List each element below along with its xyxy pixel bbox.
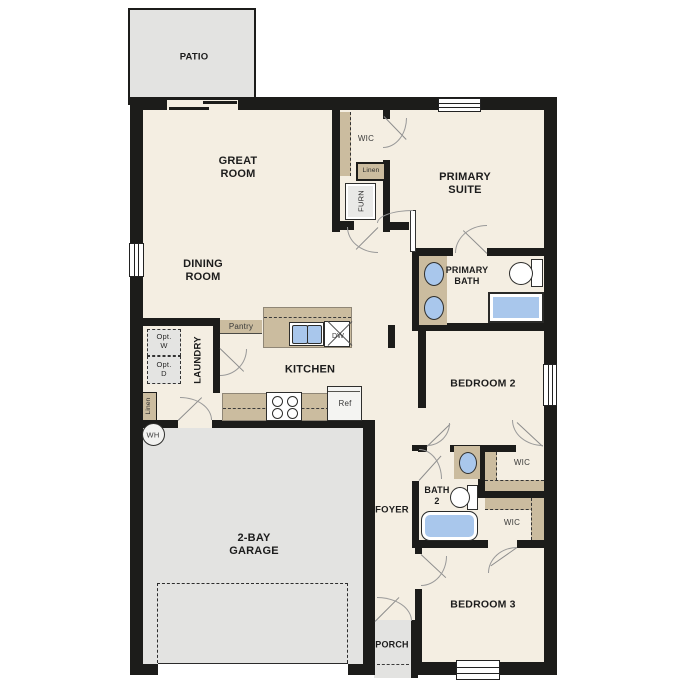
window-dining xyxy=(129,243,144,277)
room-label-great-room: GREAT ROOM xyxy=(219,155,258,181)
laundry-door-opening xyxy=(178,420,212,428)
sink-basin-right xyxy=(307,325,322,344)
room-label-porch: PORCH xyxy=(375,640,409,651)
wall-wic2-wic3 xyxy=(478,491,544,498)
wall-bath2-bedroom3-left xyxy=(412,540,488,548)
patio-slider-panel-right xyxy=(203,101,237,104)
burner-3 xyxy=(272,408,283,419)
kitchen-sink xyxy=(289,322,324,346)
wall-greatroom-closets xyxy=(332,110,340,232)
room-label-garage: 2-BAY GARAGE xyxy=(229,532,278,558)
label-water-heater: WH xyxy=(147,431,160,440)
label-furnace: FURN xyxy=(357,190,366,212)
bath2-toilet-bowl xyxy=(450,487,470,508)
room-label-patio: PATIO xyxy=(180,51,209,62)
primary-shower xyxy=(488,292,544,323)
label-wic-primary: WIC xyxy=(358,134,374,144)
window-bedroom3 xyxy=(456,660,500,680)
wall-bath2-bedroom3-right xyxy=(517,540,544,548)
primary-sink-2 xyxy=(424,296,444,320)
bath2-sink xyxy=(459,452,477,474)
bath2-tub xyxy=(421,511,478,541)
label-linen-laundry: Linen xyxy=(145,398,153,415)
burner-1 xyxy=(272,396,283,407)
label-opt-dryer: Opt. D xyxy=(157,360,172,378)
room-label-bath2: BATH 2 xyxy=(424,485,449,507)
porch-step-line xyxy=(377,664,409,665)
wall-bedroom2-left xyxy=(418,330,426,408)
refrigerator-top-line xyxy=(328,391,360,392)
room-label-foyer: FOYER xyxy=(375,504,409,515)
burner-2 xyxy=(287,396,298,407)
label-linen-hall: Linen xyxy=(363,167,380,175)
garage-door-opening xyxy=(158,663,348,677)
room-label-bedroom3: BEDROOM 3 xyxy=(450,599,515,612)
wall-primarybath-top-right xyxy=(487,248,544,256)
sink-basin-left xyxy=(292,325,308,344)
room-label-bedroom2: BEDROOM 2 xyxy=(450,378,515,391)
label-pantry: Pantry xyxy=(229,322,253,332)
wall-hall-primarybath xyxy=(412,248,419,330)
room-label-kitchen: KITCHEN xyxy=(285,363,335,376)
primary-sink-1 xyxy=(424,262,444,286)
patio-slider-panel-left xyxy=(169,107,209,110)
wic2-shelf-bottom xyxy=(485,480,544,491)
primary-toilet-bowl xyxy=(509,262,533,285)
room-label-dining-room: DINING ROOM xyxy=(183,258,223,284)
label-wic-bedroom3: WIC xyxy=(504,518,520,528)
burner-4 xyxy=(287,408,298,419)
room-label-primary-bath: PRIMARY BATH xyxy=(446,265,489,287)
label-refrigerator: Ref xyxy=(338,399,351,409)
label-wic-bedroom2: WIC xyxy=(514,458,530,468)
wall-kitchen-hall-stub xyxy=(388,325,395,348)
stove xyxy=(266,392,302,421)
wall-garage-right xyxy=(363,420,375,675)
room-label-laundry: LAUNDRY xyxy=(192,336,203,384)
kitchen-island-overhang xyxy=(264,317,351,318)
wall-dining-laundry xyxy=(143,318,220,326)
window-bedroom2 xyxy=(543,364,557,406)
floor-plan: PATIO GREAT ROOM WIC Linen FURN PRIMARY … xyxy=(0,0,687,687)
wic-primary-shelf xyxy=(340,112,351,176)
wall-foyer-bath2 xyxy=(412,481,419,545)
label-dishwasher: DW xyxy=(332,333,344,341)
garage-apron-dashed xyxy=(157,583,348,663)
wall-suite-vestibule xyxy=(385,222,409,230)
wall-laundry-pantry xyxy=(213,318,220,393)
wic3-shelf-right xyxy=(531,498,544,540)
window-primary-suite xyxy=(438,98,481,112)
room-label-primary-suite: PRIMARY SUITE xyxy=(439,171,491,197)
label-opt-washer: Opt. W xyxy=(157,332,172,350)
wall-foyer-bath2-stub xyxy=(412,445,419,451)
wall-porch-right xyxy=(411,620,418,678)
